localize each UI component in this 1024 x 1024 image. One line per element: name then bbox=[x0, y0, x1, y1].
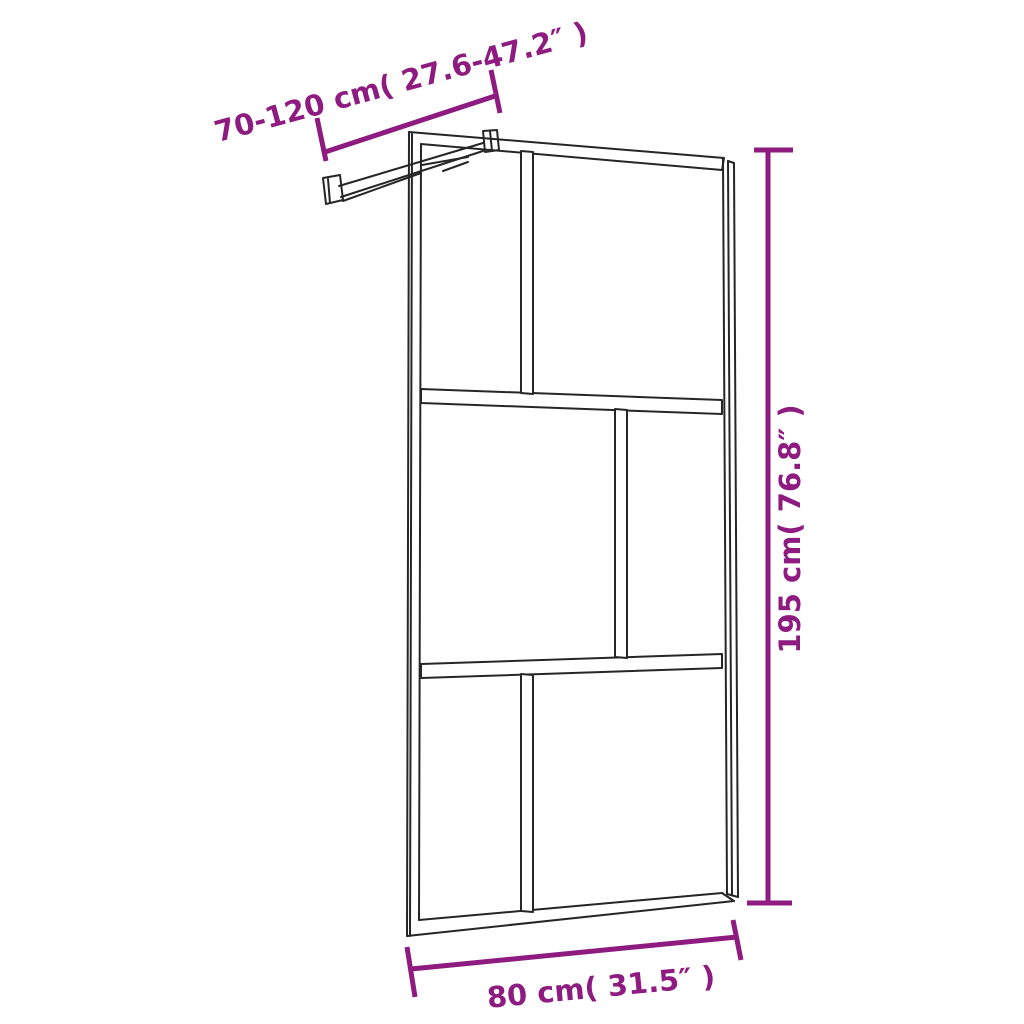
horizontal-rail-lower bbox=[421, 654, 722, 678]
frame-left-profile bbox=[407, 132, 421, 936]
shower-screen-drawing bbox=[323, 130, 738, 936]
dimension-lines bbox=[317, 70, 793, 997]
shower-screen-diagram-canvas: 70-120 cm( 27.6-47.2″ ) 195 cm( 76.8″ ) … bbox=[0, 0, 1024, 1024]
right-seal-strip bbox=[723, 159, 738, 897]
product-dimension-diagram: 70-120 cm( 27.6-47.2″ ) 195 cm( 76.8″ ) … bbox=[0, 0, 1024, 1024]
wall-bracket bbox=[323, 175, 343, 204]
frame-bottom-rail bbox=[407, 893, 734, 936]
label-height: 195 cm( 76.8″ ) bbox=[773, 404, 807, 653]
label-width: 80 cm( 31.5″ ) bbox=[485, 959, 716, 1015]
horizontal-rail-upper bbox=[421, 389, 722, 414]
mullion-middle-section bbox=[615, 409, 627, 658]
mullion-top-section bbox=[521, 151, 533, 394]
dimension-labels: 70-120 cm( 27.6-47.2″ ) 195 cm( 76.8″ ) … bbox=[211, 15, 807, 1015]
mullion-bottom-section bbox=[521, 674, 533, 912]
